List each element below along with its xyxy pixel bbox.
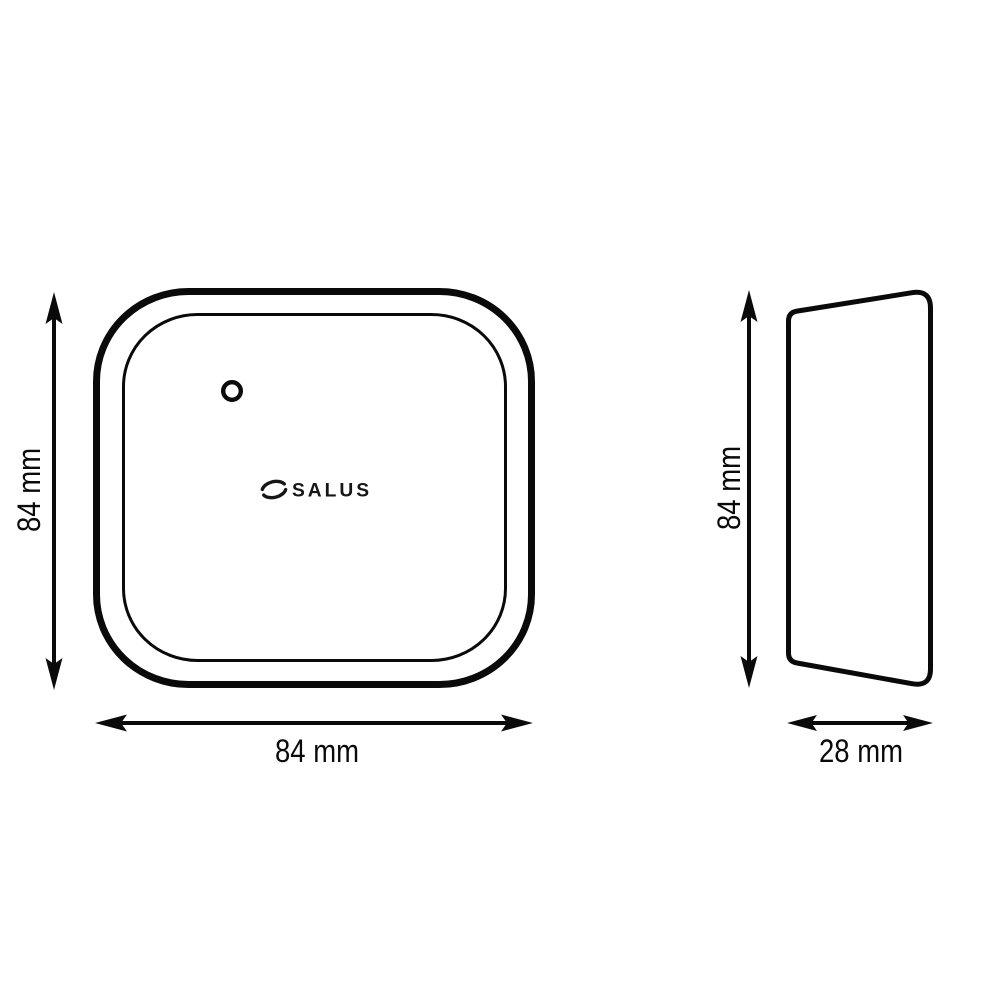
side-depth-dimension: 28 mm: [787, 715, 933, 769]
side-depth-label: 28 mm: [819, 733, 903, 769]
side-view-outline: [789, 292, 931, 684]
drawing-canvas: SALUS 84 mm 84 mm 84 mm: [0, 0, 1000, 1000]
front-view: SALUS: [97, 292, 532, 685]
side-height-dimension: 84 mm: [711, 290, 758, 688]
front-height-label: 84 mm: [11, 448, 47, 532]
side-height-label: 84 mm: [711, 446, 747, 530]
front-width-label: 84 mm: [275, 733, 359, 769]
side-view: [789, 292, 931, 684]
front-height-dimension: 84 mm: [11, 292, 63, 690]
dimension-drawing: SALUS 84 mm 84 mm 84 mm: [0, 0, 1000, 1000]
front-width-dimension: 84 mm: [95, 715, 533, 770]
salus-logo-text: SALUS: [292, 480, 372, 502]
